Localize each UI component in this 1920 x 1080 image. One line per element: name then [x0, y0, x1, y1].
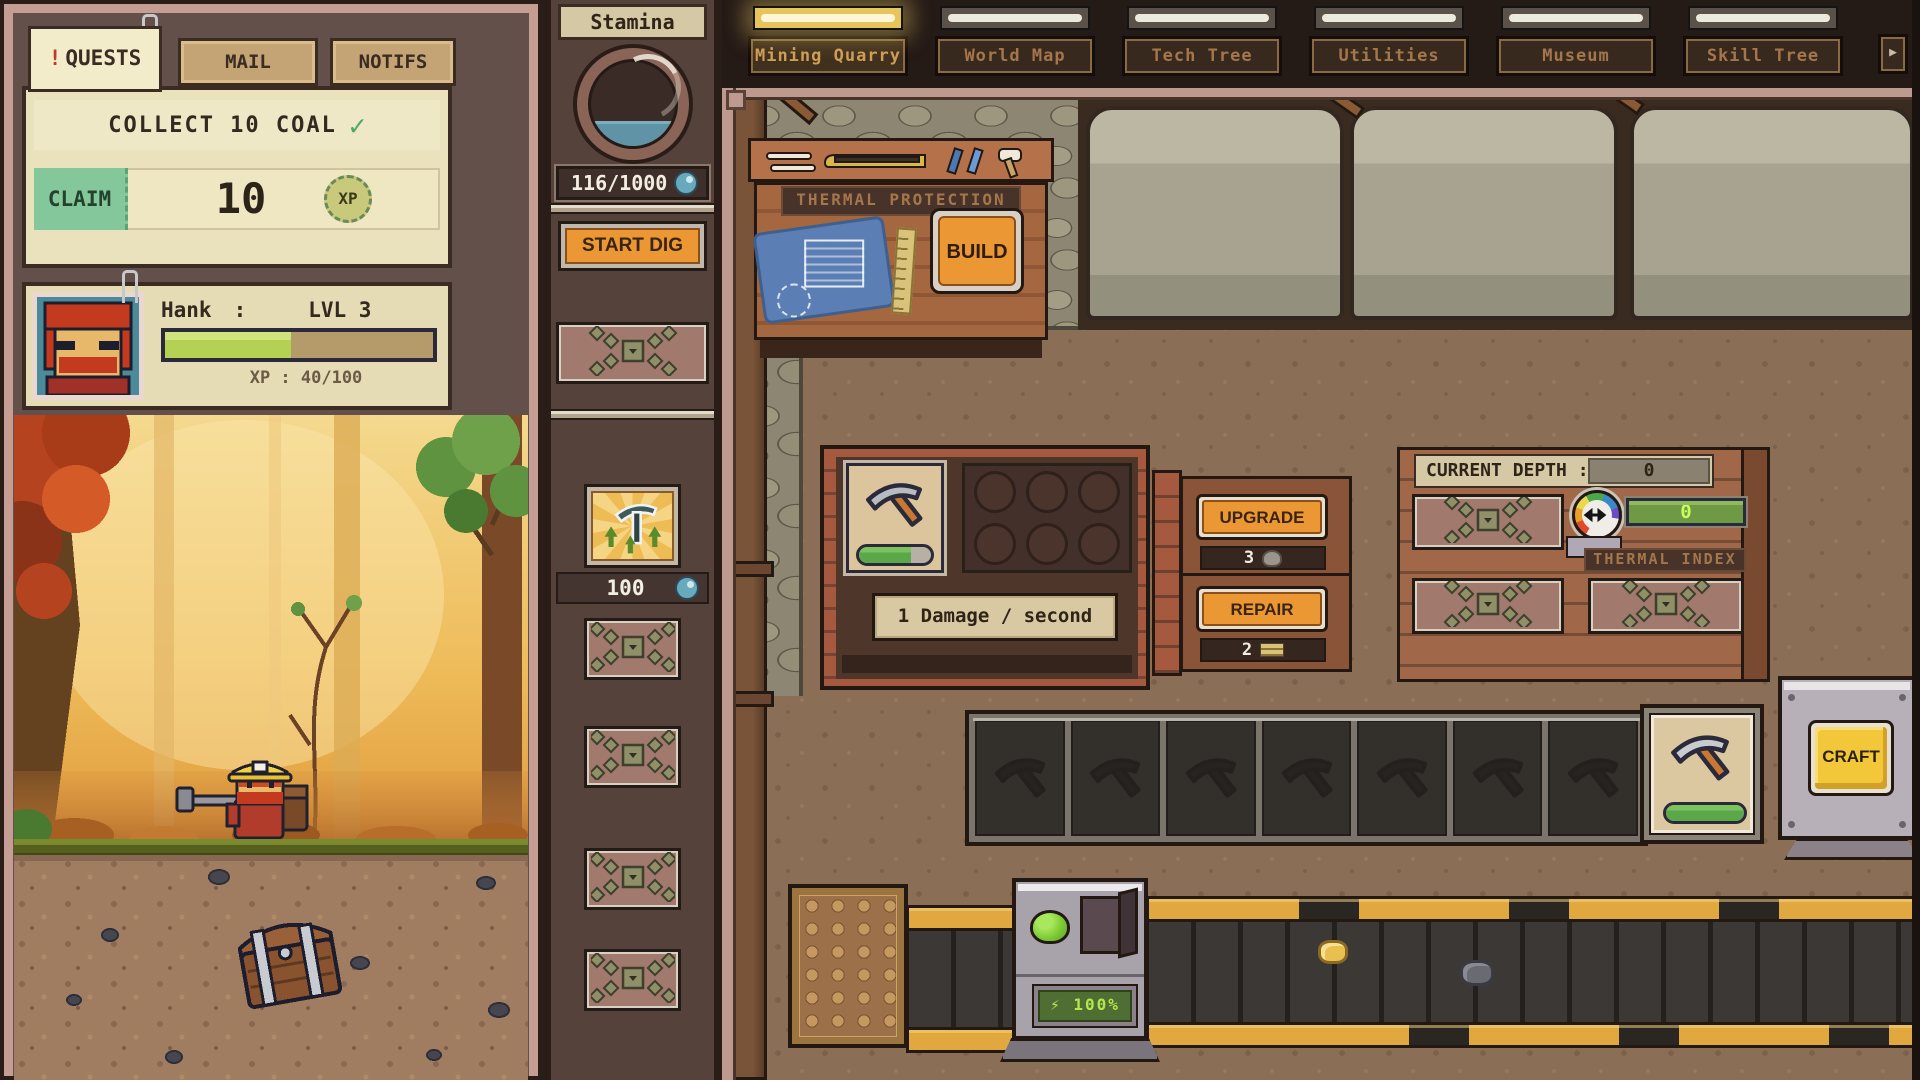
durability-bar [856, 544, 934, 566]
lamp-icon [1314, 6, 1464, 30]
nav-tab-label: Mining Quarry [755, 46, 901, 66]
durability-fill [1666, 805, 1744, 821]
player-panel: Hank:LVL 3 XP : 40/100 [22, 282, 452, 410]
upgrade-cost: 3 [1200, 546, 1326, 570]
gear-slot[interactable] [1412, 494, 1564, 550]
conveyor-rail [1146, 1022, 1920, 1048]
conveyor-belt [906, 931, 1016, 1027]
nav-sign: Museum [1496, 36, 1656, 76]
quest-panel: COLLECT 10 COAL ✓ CLAIM 10 XP [22, 86, 452, 268]
reward-amount: 10 [156, 170, 326, 228]
nav-sign: Utilities [1309, 36, 1469, 76]
conveyor-belt [1146, 922, 1920, 1022]
upgrade-socket[interactable] [1026, 471, 1068, 513]
queue-slot[interactable] [1166, 720, 1256, 836]
build-button[interactable]: BUILD [930, 208, 1024, 294]
stamina-orb [573, 44, 693, 164]
workbench-base [760, 340, 1042, 358]
xp-progress-label: XP : 40/100 [186, 368, 426, 388]
mine-scene [14, 415, 528, 1080]
tab-mail[interactable]: MAIL [178, 38, 318, 86]
upgrade-label: UPGRADE [1202, 500, 1322, 534]
gear-slot[interactable] [1412, 578, 1564, 634]
pickaxe-station: 1 Damage / second [820, 445, 1150, 690]
paperclip-icon [122, 270, 138, 303]
blueprint [752, 215, 896, 324]
durability-bar [1663, 802, 1747, 824]
depth-panel: CURRENT DEPTH : 0 0 THERMAL INDEX [1397, 447, 1770, 682]
boulder [1630, 106, 1914, 320]
inventory-slot[interactable] [584, 949, 681, 1011]
nav-sign: Skill Tree [1683, 36, 1843, 76]
slot-bracket-icon [1601, 581, 1731, 631]
player-level: LVL 3 [308, 298, 371, 322]
alert-badge: ! [49, 46, 62, 70]
repair-cost: 2 [1200, 638, 1326, 662]
treasure-chest [237, 918, 341, 1008]
repair-cost-value: 2 [1242, 640, 1252, 660]
pickaxe-icon [863, 474, 925, 540]
nav-tab-museum[interactable]: Museum [1496, 0, 1656, 76]
slot-bracket-icon [591, 622, 675, 676]
upgrade-button[interactable]: UPGRADE [1196, 494, 1328, 540]
divider [551, 409, 714, 420]
upgrade-cost-value: 3 [1244, 548, 1254, 568]
quest-title: COLLECT 10 COAL [108, 113, 337, 138]
upgrade-count-bar: 100 [556, 572, 709, 604]
queue-slot[interactable] [1262, 720, 1352, 836]
stone-icon [1262, 550, 1282, 567]
start-dig-button[interactable]: START DIG [558, 221, 707, 271]
xp-progress-bar [161, 328, 437, 362]
lamp-icon [1501, 6, 1651, 30]
mining-quarry-view: THERMAL PROTECTION BUILD 1 Damage / seco… [722, 88, 1920, 1080]
stamina-liquid [591, 121, 675, 146]
upgrade-repair-panel: UPGRADE 3 REPAIR 2 [1152, 470, 1352, 676]
tab-quests-label: QUESTS [65, 46, 141, 70]
inventory-slot[interactable] [584, 618, 681, 680]
tab-quests[interactable]: !QUESTS [28, 26, 162, 92]
nav-sign: Mining Quarry [748, 36, 908, 76]
boulder [1086, 106, 1344, 320]
boulder-row [1078, 98, 1920, 330]
nav-tab-label: Utilities [1338, 46, 1439, 66]
boulder [1350, 106, 1618, 320]
tab-mail-label: MAIL [225, 51, 271, 73]
nav-sign: World Map [935, 36, 1095, 76]
conveyor-rail [906, 1027, 1016, 1053]
screen-edge [1912, 0, 1920, 1080]
divider [551, 203, 714, 214]
nav-tabs: Mining Quarry World Map Tech Tree Utilit… [748, 0, 1843, 76]
quest-complete-check-icon: ✓ [349, 109, 366, 142]
brick-column [1152, 470, 1182, 676]
nav-tab-label: World Map [964, 46, 1065, 66]
separator: : [234, 298, 247, 322]
stamina-value-bar: 116/1000 [556, 166, 709, 200]
nav-tab-skill-tree[interactable]: Skill Tree [1683, 0, 1843, 76]
slot-bracket-icon [1423, 581, 1553, 631]
chute-flap [1118, 888, 1138, 959]
nav-scroll-arrow[interactable]: ▶ [1878, 34, 1908, 74]
nav-tab-label: Skill Tree [1707, 46, 1819, 66]
upgrade-socket[interactable] [974, 523, 1016, 565]
pickaxe-upgrade-item[interactable] [584, 484, 681, 568]
main-frame-top [722, 88, 1920, 100]
gold-nugget-item[interactable] [1318, 940, 1348, 964]
quest-entry: COLLECT 10 COAL ✓ [34, 100, 440, 150]
slot-bracket-icon [591, 852, 675, 906]
xp-progress-fill [165, 332, 291, 358]
orb-icon [675, 576, 699, 600]
equipment-slot-wide[interactable] [556, 322, 709, 384]
slot-bracket-icon [563, 326, 703, 380]
thermal-gauge-icon [1572, 490, 1622, 540]
damage-tooltip: 1 Damage / second [872, 593, 1118, 641]
xp-badge: XP [324, 175, 372, 223]
gear-slot[interactable] [1588, 578, 1744, 634]
thermal-protection-workbench: THERMAL PROTECTION BUILD [748, 138, 1054, 360]
craft-station: CRAFT [1778, 676, 1916, 840]
inventory-slot[interactable] [584, 848, 681, 910]
upgrade-socket[interactable] [1078, 471, 1120, 513]
stamina-orb-icon [674, 171, 698, 195]
craft-button[interactable]: CRAFT [1808, 720, 1894, 796]
nav-sign: Tech Tree [1122, 36, 1282, 76]
inventory-slot[interactable] [584, 726, 681, 788]
repair-label: REPAIR [1202, 592, 1322, 626]
panel-shadow [842, 655, 1132, 673]
lamp-icon [753, 6, 903, 30]
lamp-icon [1127, 6, 1277, 30]
thermal-index-label: THERMAL INDEX [1584, 548, 1746, 572]
conveyor-rail [906, 905, 1016, 931]
repair-button[interactable]: REPAIR [1196, 586, 1328, 632]
frame-ornament [726, 90, 746, 110]
tab-notifs[interactable]: NOTIFS [330, 38, 456, 86]
upgrade-socket[interactable] [1026, 523, 1068, 565]
main-frame-left [722, 88, 736, 1080]
thermal-index-bar: 0 [1626, 498, 1746, 526]
power-value: 100% [1073, 995, 1120, 1014]
game-screen: !QUESTS MAIL NOTIFS COLLECT 10 COAL ✓ CL… [0, 0, 1920, 1080]
durability-fill [859, 547, 911, 563]
stamina-title: Stamina [558, 4, 707, 40]
claim-button[interactable]: CLAIM [34, 168, 128, 230]
power-icon: ⚡ [1050, 995, 1062, 1014]
craft-queue [965, 710, 1648, 846]
upgrade-count: 100 [576, 576, 675, 600]
build-label: BUILD [938, 216, 1016, 286]
nav-tab-utilities[interactable]: Utilities [1309, 0, 1469, 76]
upgrade-socket[interactable] [1078, 523, 1120, 565]
tool-shelf [748, 138, 1054, 182]
queue-slot[interactable] [1453, 720, 1543, 836]
upgrade-socket[interactable] [974, 471, 1016, 513]
craft-label: CRAFT [1815, 727, 1887, 789]
slot-bracket-icon [591, 953, 675, 1007]
planks-icon [1260, 643, 1284, 657]
tab-notifs-label: NOTIFS [359, 51, 428, 73]
player-name-row: Hank:LVL 3 [161, 298, 441, 324]
queue-slot[interactable] [1071, 720, 1161, 836]
queue-slot[interactable] [1357, 720, 1447, 836]
queue-slot[interactable] [1548, 720, 1638, 836]
machine-base [1000, 1038, 1160, 1062]
conveyor-rail [1146, 896, 1920, 922]
depth-value-field: 0 [1588, 458, 1710, 484]
sorting-machine[interactable]: ⚡ 100% [1012, 878, 1148, 1040]
slot-bracket-icon [1423, 497, 1553, 547]
stamina-column: Stamina 116/1000 START DIG [551, 0, 714, 1080]
nav-tab-world-map[interactable]: World Map [935, 0, 1095, 76]
power-display: ⚡ 100% [1032, 984, 1138, 1028]
top-nav: Mining Quarry World Map Tech Tree Utilit… [722, 0, 1920, 88]
depth-label: CURRENT DEPTH : [1426, 460, 1589, 481]
quest-tab-bar: !QUESTS MAIL NOTIFS [24, 22, 454, 92]
ore-crate[interactable] [788, 884, 908, 1048]
lamp-icon [940, 6, 1090, 30]
equipped-pickaxe-card[interactable] [846, 463, 944, 573]
slime-blob [1030, 910, 1070, 944]
slot-bracket-icon [591, 730, 675, 784]
queue-slot[interactable] [975, 720, 1065, 836]
ore-chunks [800, 896, 896, 1036]
craft-result-slot[interactable] [1640, 704, 1764, 844]
depth-plaque: CURRENT DEPTH : 0 [1414, 454, 1714, 488]
craft-station-base [1784, 838, 1920, 860]
stamina-value: 116/1000 [571, 171, 674, 195]
quest-reward-row: CLAIM 10 XP [34, 168, 440, 230]
player-name: Hank [161, 298, 212, 322]
start-dig-label: START DIG [565, 228, 700, 264]
socket-board [962, 463, 1132, 573]
nav-tab-mining-quarry[interactable]: Mining Quarry [748, 0, 908, 76]
nav-tab-tech-tree[interactable]: Tech Tree [1122, 0, 1282, 76]
scene-illustration [14, 415, 528, 1080]
player-avatar [32, 292, 144, 400]
pickaxe-icon [1668, 726, 1732, 794]
rock-item[interactable] [1460, 960, 1494, 986]
lamp-icon [1688, 6, 1838, 30]
crafted-pickaxe-card[interactable] [1651, 715, 1753, 833]
nav-tab-label: Museum [1542, 46, 1609, 66]
nav-tab-label: Tech Tree [1151, 46, 1252, 66]
